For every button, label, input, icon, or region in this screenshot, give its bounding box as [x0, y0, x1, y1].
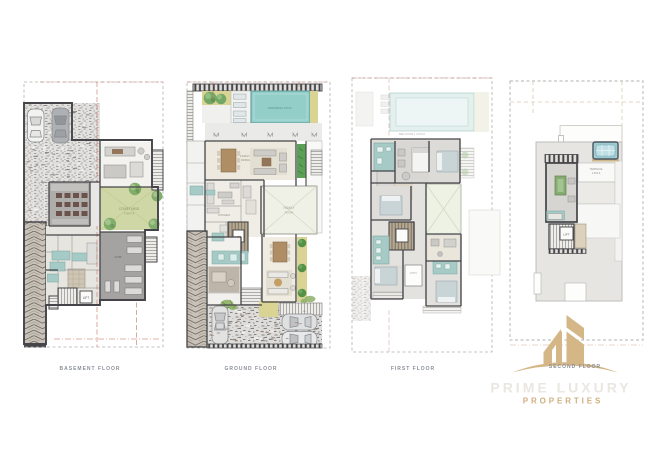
svg-text:FAMILY: FAMILY — [283, 206, 295, 210]
svg-text:ATTIC: ATTIC — [410, 271, 417, 275]
svg-text:SWIMMING POOL: SWIMMING POOL — [268, 106, 293, 110]
svg-text:1.3X4.6: 1.3X4.6 — [592, 172, 601, 175]
svg-text:GYM: GYM — [115, 255, 122, 259]
svg-text:SECOND FLOOR: SECOND FLOOR — [549, 364, 601, 370]
svg-text:GROUND FLOOR: GROUND FLOOR — [224, 366, 277, 372]
svg-text:LIFT: LIFT — [563, 233, 569, 237]
svg-text:7.9X7.4: 7.9X7.4 — [124, 212, 135, 216]
svg-text:COURTYARD: COURTYARD — [119, 207, 140, 211]
svg-text:TERRACE: TERRACE — [590, 167, 603, 171]
svg-text:PRIME LUXURY: PRIME LUXURY — [490, 380, 631, 396]
svg-text:FIRST FLOOR: FIRST FLOOR — [391, 366, 435, 372]
svg-text:BED ROOM 1 3.6X4.6: BED ROOM 1 3.6X4.6 — [399, 132, 426, 136]
svg-text:PROPERTIES: PROPERTIES — [523, 397, 604, 406]
svg-text:BASEMENT FLOOR: BASEMENT FLOOR — [60, 366, 121, 372]
svg-text:ROOM: ROOM — [285, 211, 294, 215]
svg-text:LIFT: LIFT — [83, 296, 90, 300]
svg-text:KITCHEN: KITCHEN — [218, 213, 230, 217]
